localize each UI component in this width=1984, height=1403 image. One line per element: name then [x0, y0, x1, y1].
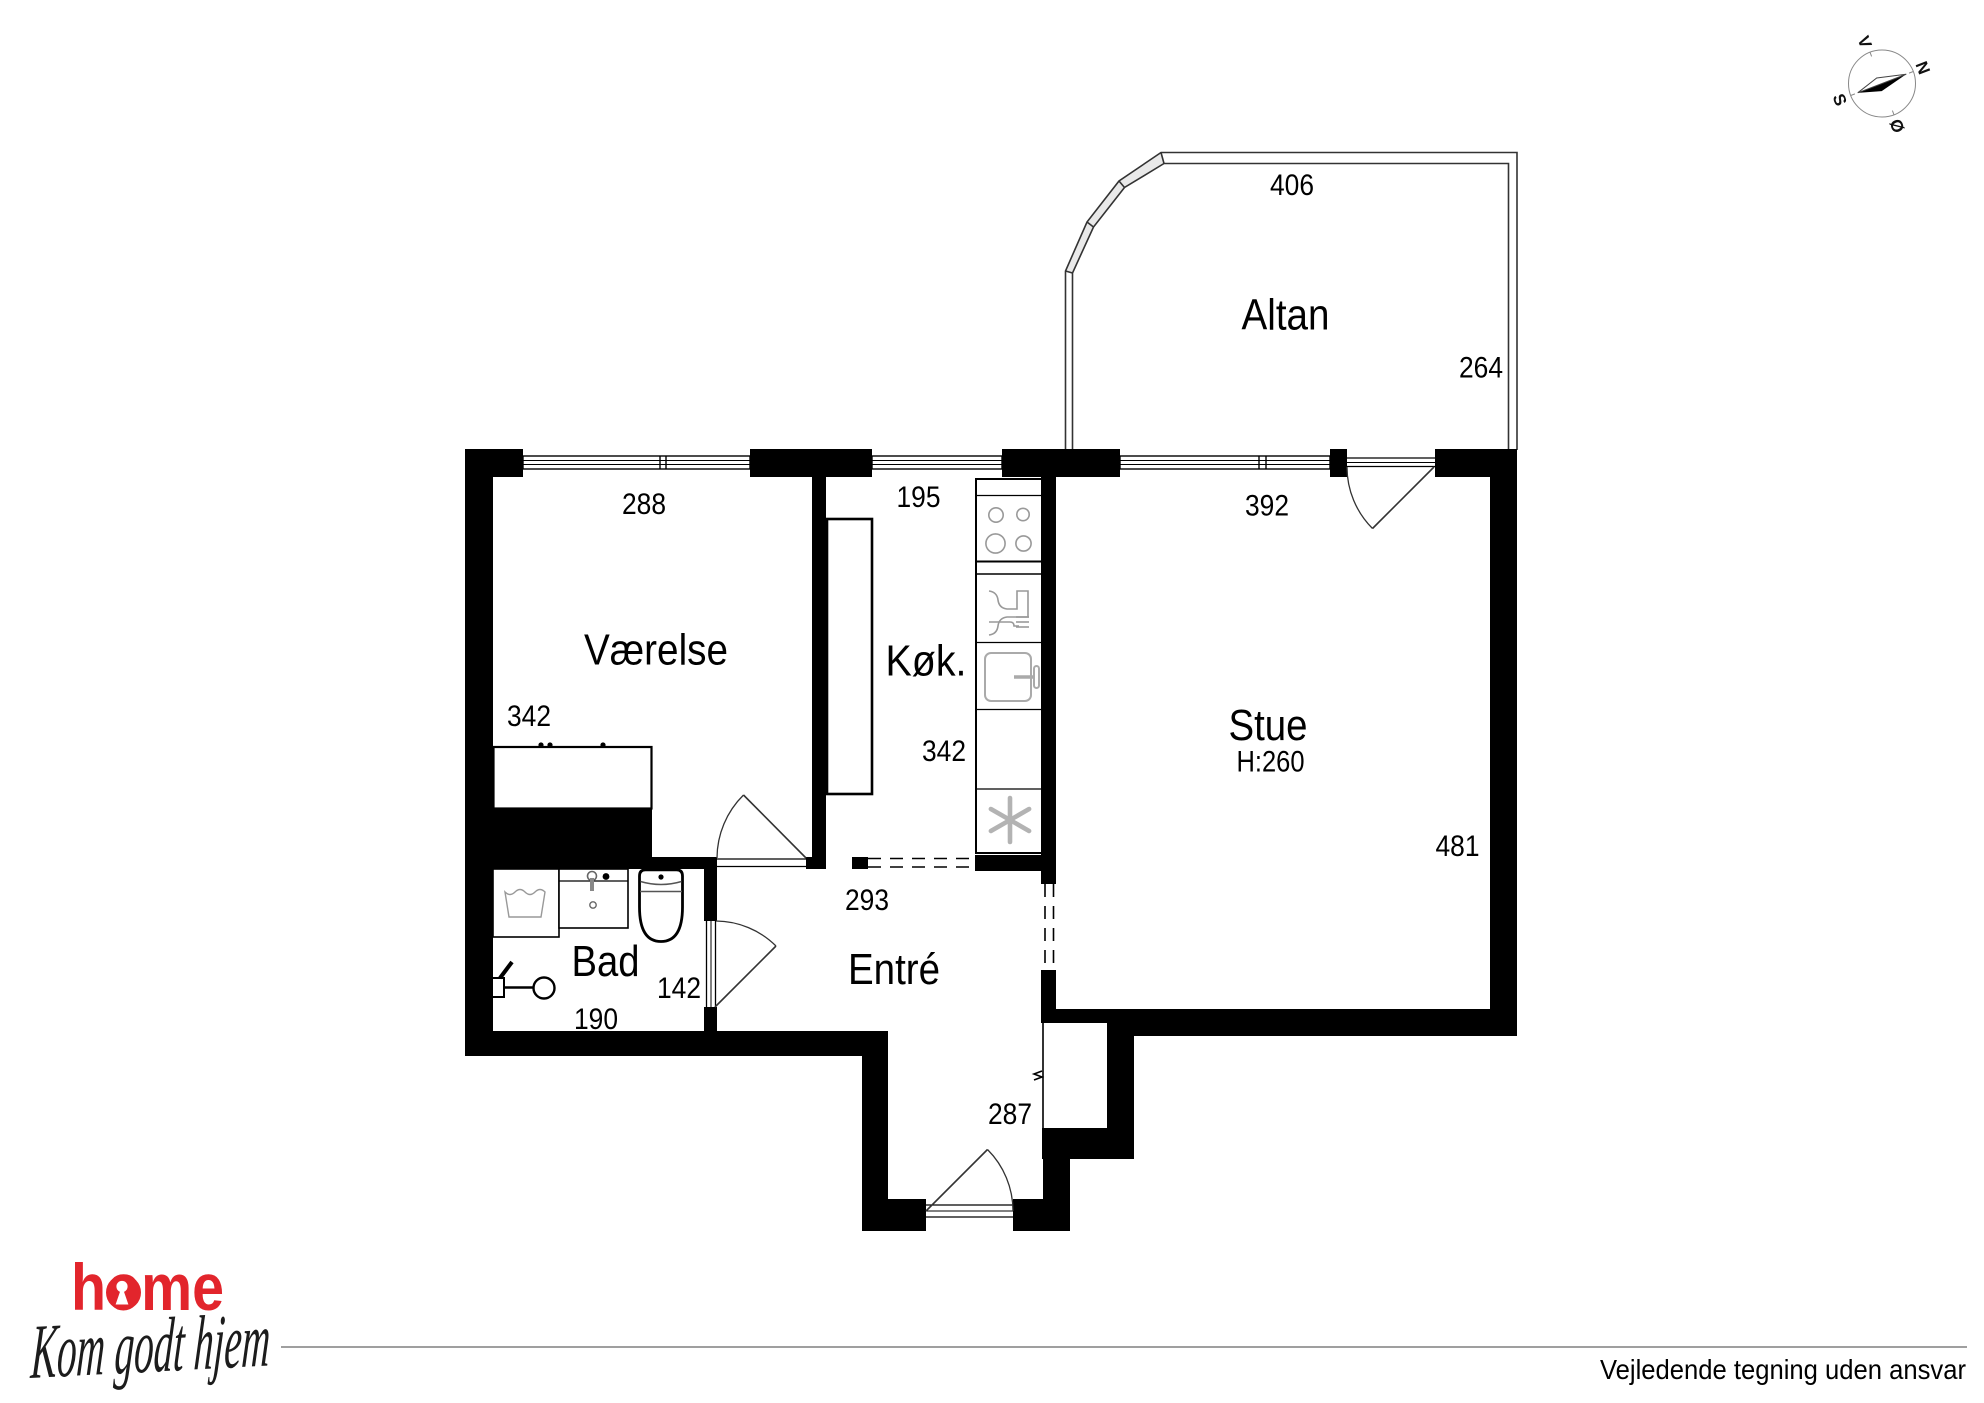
svg-text:288: 288: [622, 488, 666, 521]
svg-text:Bad: Bad: [572, 937, 640, 986]
svg-text:Køk.: Køk.: [886, 637, 967, 686]
svg-text:264: 264: [1459, 352, 1503, 385]
svg-text:Altan: Altan: [1242, 291, 1330, 340]
svg-text:481: 481: [1436, 830, 1480, 863]
svg-text:Vejledende tegning uden ansvar: Vejledende tegning uden ansvar: [1600, 1354, 1966, 1385]
svg-text:342: 342: [507, 700, 551, 733]
svg-text:Stue: Stue: [1229, 701, 1308, 750]
svg-text:342: 342: [922, 735, 966, 768]
svg-text:Entré: Entré: [848, 945, 940, 994]
svg-text:H:260: H:260: [1237, 746, 1305, 779]
svg-text:195: 195: [897, 481, 941, 514]
svg-text:392: 392: [1245, 490, 1289, 523]
svg-text:190: 190: [574, 1003, 618, 1036]
svg-text:142: 142: [657, 972, 701, 1005]
svg-text:287: 287: [988, 1098, 1032, 1131]
svg-text:Værelse: Værelse: [584, 626, 728, 675]
svg-text:406: 406: [1270, 169, 1314, 202]
svg-text:293: 293: [845, 884, 889, 917]
svg-text:Kom godt hjem: Kom godt hjem: [29, 1296, 273, 1395]
